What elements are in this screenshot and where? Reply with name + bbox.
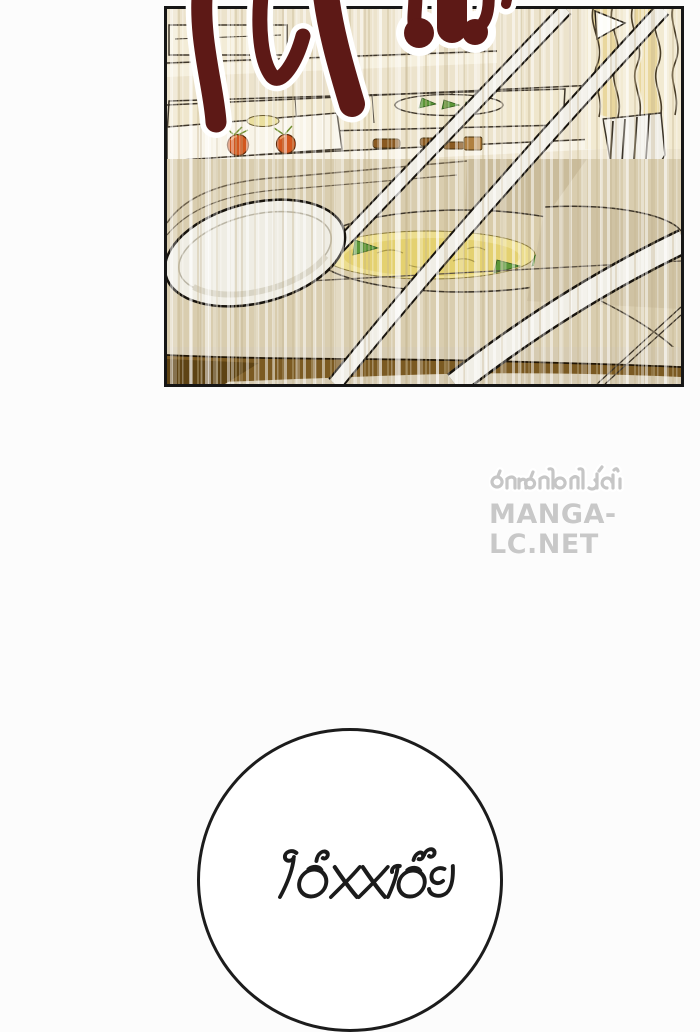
food-tray-artwork: [167, 9, 681, 384]
manga-page: อ่านก่อนใครได้ที่ MANGA-LC.NET: [0, 0, 700, 1000]
watermark-thai-artwork: [489, 464, 659, 498]
speed-streaks: [167, 9, 681, 384]
watermark: อ่านก่อนใครได้ที่ MANGA-LC.NET: [489, 464, 699, 560]
watermark-thai-line: อ่านก่อนใครได้ที่: [489, 464, 699, 498]
speech-text-artwork: [200, 731, 500, 1029]
food-tray-panel: [164, 6, 684, 387]
speech-bubble: ไอ้XXเอ๊ย: [197, 728, 503, 1032]
watermark-site-name: MANGA-LC.NET: [489, 500, 699, 560]
